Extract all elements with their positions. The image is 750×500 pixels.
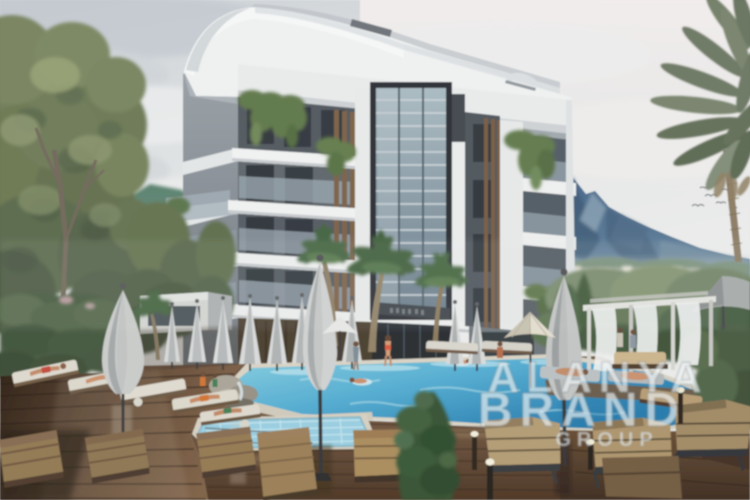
svg-text:GROUP: GROUP [555,429,658,451]
